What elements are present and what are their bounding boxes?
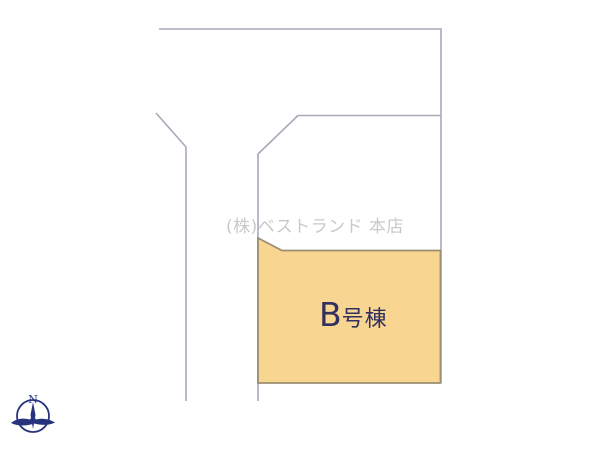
compass-needle <box>31 402 36 429</box>
compass-north-label: N <box>28 393 38 406</box>
parcel-b-label-suffix: 号棟 <box>342 307 388 332</box>
site-plan: (株)ベストランド 本店 B号棟 N <box>0 0 600 450</box>
watermark-text: (株)ベストランド 本店 <box>226 212 404 237</box>
parcel-b-label: B号棟 <box>319 298 388 331</box>
compass-icon: N <box>7 389 59 443</box>
parcel-b-label-prefix: B <box>319 295 342 334</box>
road-edge-left-line <box>156 113 186 401</box>
